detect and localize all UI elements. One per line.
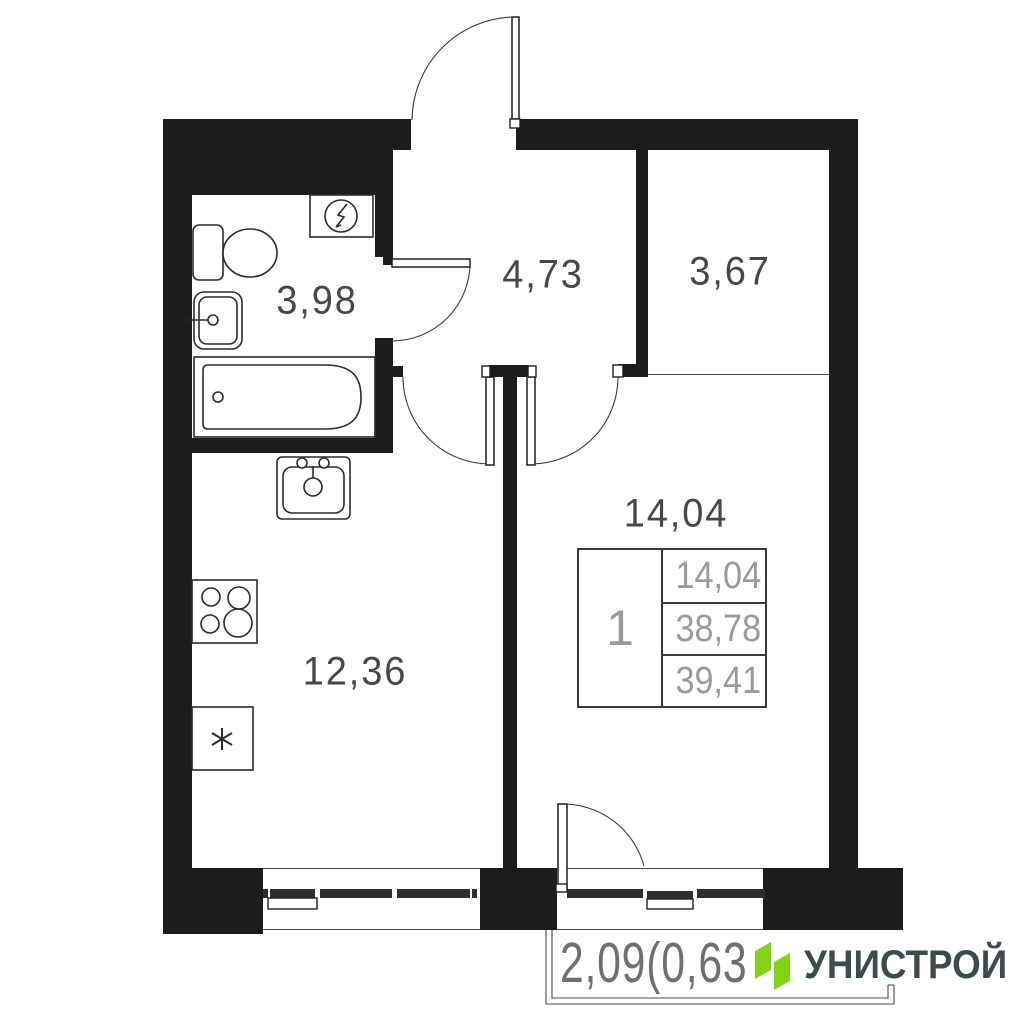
window-jamb-tick xyxy=(263,889,268,898)
room-area-label-storage: 3,67 xyxy=(689,250,771,295)
entry-door xyxy=(412,17,520,128)
stove-burner xyxy=(202,588,220,606)
entry-door-leaf xyxy=(512,17,519,119)
toilet xyxy=(193,225,277,280)
window-vent-box xyxy=(268,898,317,909)
room-area-label-kitchen: 12,36 xyxy=(303,650,408,695)
floor-plan-canvas: 3,98 4,73 3,67 12,36 14,04 1 14,04 38,78… xyxy=(0,0,1024,1024)
room-area-label-hallway: 4,73 xyxy=(502,253,584,298)
kitchen-door-swing-arc xyxy=(403,377,490,464)
bathtub xyxy=(194,357,375,437)
balcony-dimension-text: 2,09(0,63 xyxy=(560,930,747,996)
stamp-rooms-count: 1 xyxy=(579,550,663,706)
wall-right xyxy=(829,119,858,870)
kitchen-door-hinge xyxy=(482,366,490,377)
kitchen-door xyxy=(403,366,494,465)
balcony-door-hinge xyxy=(556,884,567,892)
bathroom-door-leaf xyxy=(392,259,470,267)
bottom-right-pier xyxy=(763,868,903,930)
bathroom-bottom-wall xyxy=(192,438,393,453)
wall-top-right xyxy=(516,119,858,150)
stove xyxy=(192,580,257,643)
bedroom-door-swing-arc xyxy=(531,377,618,464)
stamp-living-area: 14,04 xyxy=(663,550,765,602)
bathroom-top-wall xyxy=(163,150,393,195)
stamp-total-area: 39,41 xyxy=(663,654,765,706)
kitchen-window xyxy=(263,889,477,909)
entry-door-swing-arc xyxy=(412,17,515,120)
washbasin xyxy=(188,292,242,349)
bottom-left-corner-block xyxy=(163,868,263,934)
window-jamb-tick xyxy=(760,889,765,898)
kitchen-door-leaf xyxy=(486,377,494,465)
bedroom-door xyxy=(527,365,623,465)
bedroom-window xyxy=(567,889,765,909)
entry-door-hinge xyxy=(510,119,520,128)
apartment-stamp-table: 1 14,04 38,78 39,41 xyxy=(577,548,767,708)
stamp-apartment-area: 38,78 xyxy=(663,602,765,654)
room-area-label-bathroom: 3,98 xyxy=(276,279,358,324)
developer-logo: УНИСТРОЙ xyxy=(752,928,1024,998)
room-area-label-bedroom: 14,04 xyxy=(624,492,729,537)
fridge xyxy=(192,707,253,770)
bathroom-right-wall-upper xyxy=(375,150,393,257)
bathroom-door xyxy=(392,259,470,341)
bathroom-door-swing-arc xyxy=(392,263,470,341)
bottom-middle-pier xyxy=(480,868,557,930)
wall-top-left xyxy=(163,119,411,150)
balcony-door-swing-arc xyxy=(562,804,644,866)
stove-burner xyxy=(228,587,250,609)
window-glazing-bar xyxy=(697,889,760,898)
window-jamb-tick xyxy=(472,889,477,898)
kitchen-sink-tap-mount xyxy=(319,458,329,468)
window-vent-bar xyxy=(647,891,693,899)
washbasin-drain xyxy=(208,315,218,325)
logo-brand-text: УНИСТРОЙ xyxy=(804,943,1007,988)
stove-burner xyxy=(201,615,219,633)
kitchen-sink-tap-mount xyxy=(297,458,307,468)
stove-burner xyxy=(224,609,252,637)
wall-left xyxy=(163,119,192,934)
logo-green-marks-icon xyxy=(752,928,812,998)
central-partition-wall xyxy=(503,377,517,868)
window-glazing-bar xyxy=(397,889,470,898)
toilet-tank xyxy=(193,225,223,280)
kitchen-sink-drain xyxy=(304,478,322,496)
window-glazing-bar xyxy=(567,889,643,898)
floor-plan-drawing xyxy=(0,0,1024,1024)
window-glazing-bar xyxy=(270,889,315,898)
balcony-door xyxy=(556,804,644,892)
kitchen-sink xyxy=(277,457,350,519)
balcony-door-leaf xyxy=(558,804,567,889)
bathroom-right-wall-lower xyxy=(375,338,393,453)
bedroom-door-jamb-cap xyxy=(613,365,623,377)
central-wall-cap xyxy=(489,365,529,377)
storage-partition-wall xyxy=(636,150,648,377)
kitchen-door-jamb xyxy=(393,366,403,377)
bedroom-door-leaf xyxy=(527,377,535,465)
window-glazing-bar xyxy=(320,889,392,898)
bathtub-drain xyxy=(213,392,223,402)
bathtub-inner xyxy=(203,365,361,429)
window-vent-box xyxy=(647,899,693,909)
bedroom-door-hinge xyxy=(528,366,536,377)
toilet-bowl xyxy=(223,229,277,277)
electrical-panel xyxy=(310,195,373,237)
